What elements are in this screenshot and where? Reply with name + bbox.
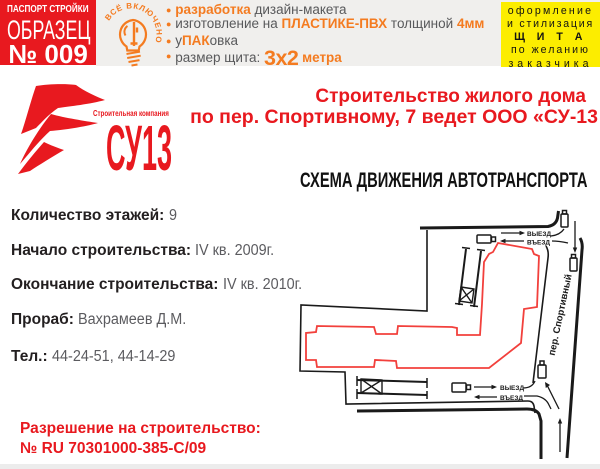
svg-text:ВЪЕЗД: ВЪЕЗД: [527, 240, 550, 247]
svg-text:ВЫЕЗД: ВЫЕЗД: [500, 385, 524, 392]
svg-text:ВЪЕЗД: ВЪЕЗД: [500, 395, 523, 402]
svg-text:ВЫЕЗД: ВЫЕЗД: [527, 231, 551, 238]
svg-text:пер. Спортивный: пер. Спортивный: [547, 273, 575, 357]
